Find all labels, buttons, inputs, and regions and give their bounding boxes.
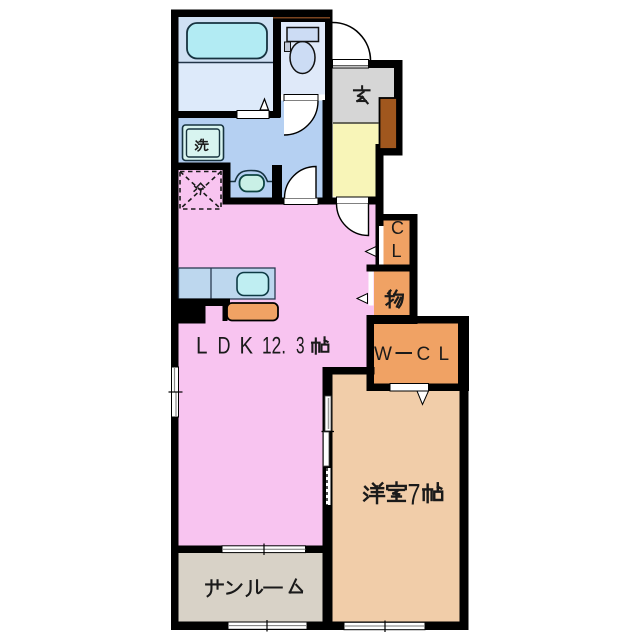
svg-text:C: C (391, 218, 404, 238)
svg-text:D: D (218, 333, 231, 360)
svg-text:12.: 12. (262, 333, 286, 360)
svg-text:L: L (196, 333, 208, 360)
svg-text:L: L (439, 344, 450, 365)
svg-text:7: 7 (408, 479, 421, 512)
svg-text:C: C (417, 344, 431, 365)
svg-text:W: W (374, 344, 392, 365)
svg-text:K: K (240, 333, 254, 360)
svg-text:3: 3 (296, 333, 305, 360)
svg-text:L: L (392, 241, 402, 261)
